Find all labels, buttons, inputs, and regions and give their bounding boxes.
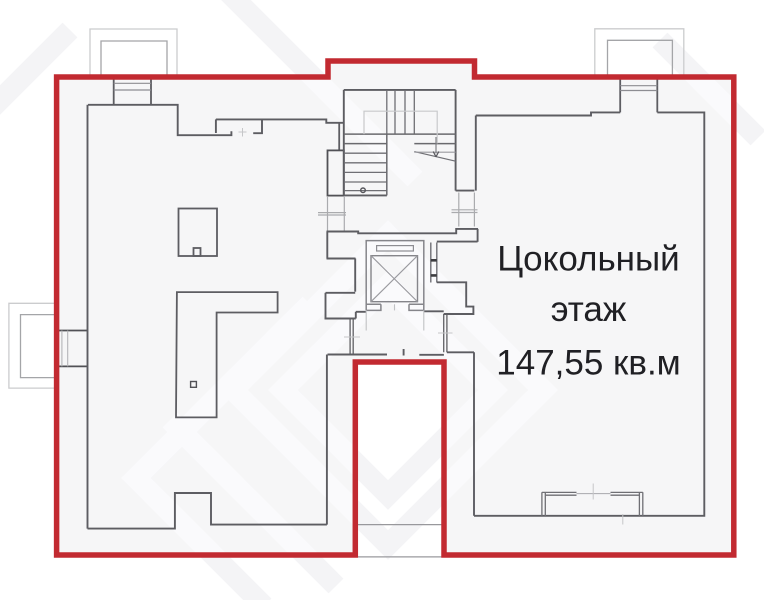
svg-text:147,55 кв.м: 147,55 кв.м <box>496 344 680 383</box>
svg-text:этаж: этаж <box>551 290 627 329</box>
svg-text:Цокольный: Цокольный <box>497 240 679 279</box>
